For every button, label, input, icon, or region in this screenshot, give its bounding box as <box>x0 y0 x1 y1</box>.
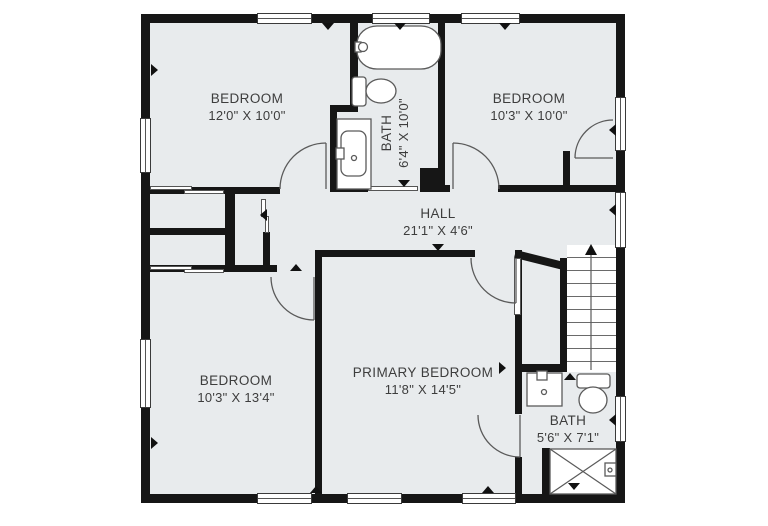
window <box>372 13 430 24</box>
room-label-primary-bedroom: PRIMARY BEDROOM 11'8" X 14'5" <box>323 364 523 398</box>
window <box>462 493 516 504</box>
sliding-door <box>265 216 269 233</box>
room-dimensions: 12'0" X 10'0" <box>167 107 327 124</box>
room-label-bedroom-bottom-left: BEDROOM 10'3" X 13'4" <box>156 372 316 406</box>
floor-plan: BEDROOM 12'0" X 10'0" BATH 6'4" X 10'0" … <box>0 0 768 526</box>
wall <box>565 185 625 192</box>
room-label-bath-top: BATH 6'4" X 10'0" <box>378 73 424 193</box>
wall <box>350 23 358 111</box>
wall <box>322 250 475 257</box>
sliding-door <box>261 199 266 217</box>
window <box>347 493 402 504</box>
wall <box>330 185 368 192</box>
window <box>140 339 151 408</box>
room-name: BATH <box>378 73 395 193</box>
sliding-door <box>184 190 224 194</box>
wall <box>445 185 450 192</box>
sliding-door <box>514 258 521 315</box>
room-name: BEDROOM <box>156 372 316 389</box>
wall <box>141 14 150 503</box>
room-label-bath-bottom: BATH 5'6" X 7'1" <box>508 412 628 446</box>
wall <box>560 258 567 372</box>
room-dimensions: 21'1" X 4'6" <box>358 222 518 239</box>
room-name: BEDROOM <box>167 90 327 107</box>
wall <box>438 23 445 172</box>
window <box>615 192 626 248</box>
room-label-hall: HALL 21'1" X 4'6" <box>358 205 518 239</box>
room-name: BATH <box>508 412 628 429</box>
room-label-bedroom-top-right: BEDROOM 10'3" X 10'0" <box>449 90 609 124</box>
wall <box>515 457 522 495</box>
wall <box>498 185 565 192</box>
window <box>461 13 520 24</box>
wall <box>330 105 337 192</box>
room-dimensions: 10'3" X 13'4" <box>156 389 316 406</box>
window <box>140 118 151 173</box>
room-name: PRIMARY BEDROOM <box>323 364 523 381</box>
sliding-door <box>184 269 224 273</box>
room-name: HALL <box>358 205 518 222</box>
window <box>257 13 312 24</box>
room-dimensions: 10'3" X 10'0" <box>449 107 609 124</box>
wall <box>143 228 230 235</box>
room-dimensions: 11'8" X 14'5" <box>323 381 523 398</box>
room-dimensions: 5'6" X 7'1" <box>508 429 628 446</box>
window <box>615 97 626 151</box>
staircase <box>567 245 616 372</box>
window <box>257 493 312 504</box>
room-dimensions: 6'4" X 10'0" <box>395 73 412 193</box>
room-label-bedroom-top-left: BEDROOM 12'0" X 10'0" <box>167 90 327 124</box>
wall <box>315 250 322 495</box>
room-name: BEDROOM <box>449 90 609 107</box>
wall <box>542 448 550 494</box>
